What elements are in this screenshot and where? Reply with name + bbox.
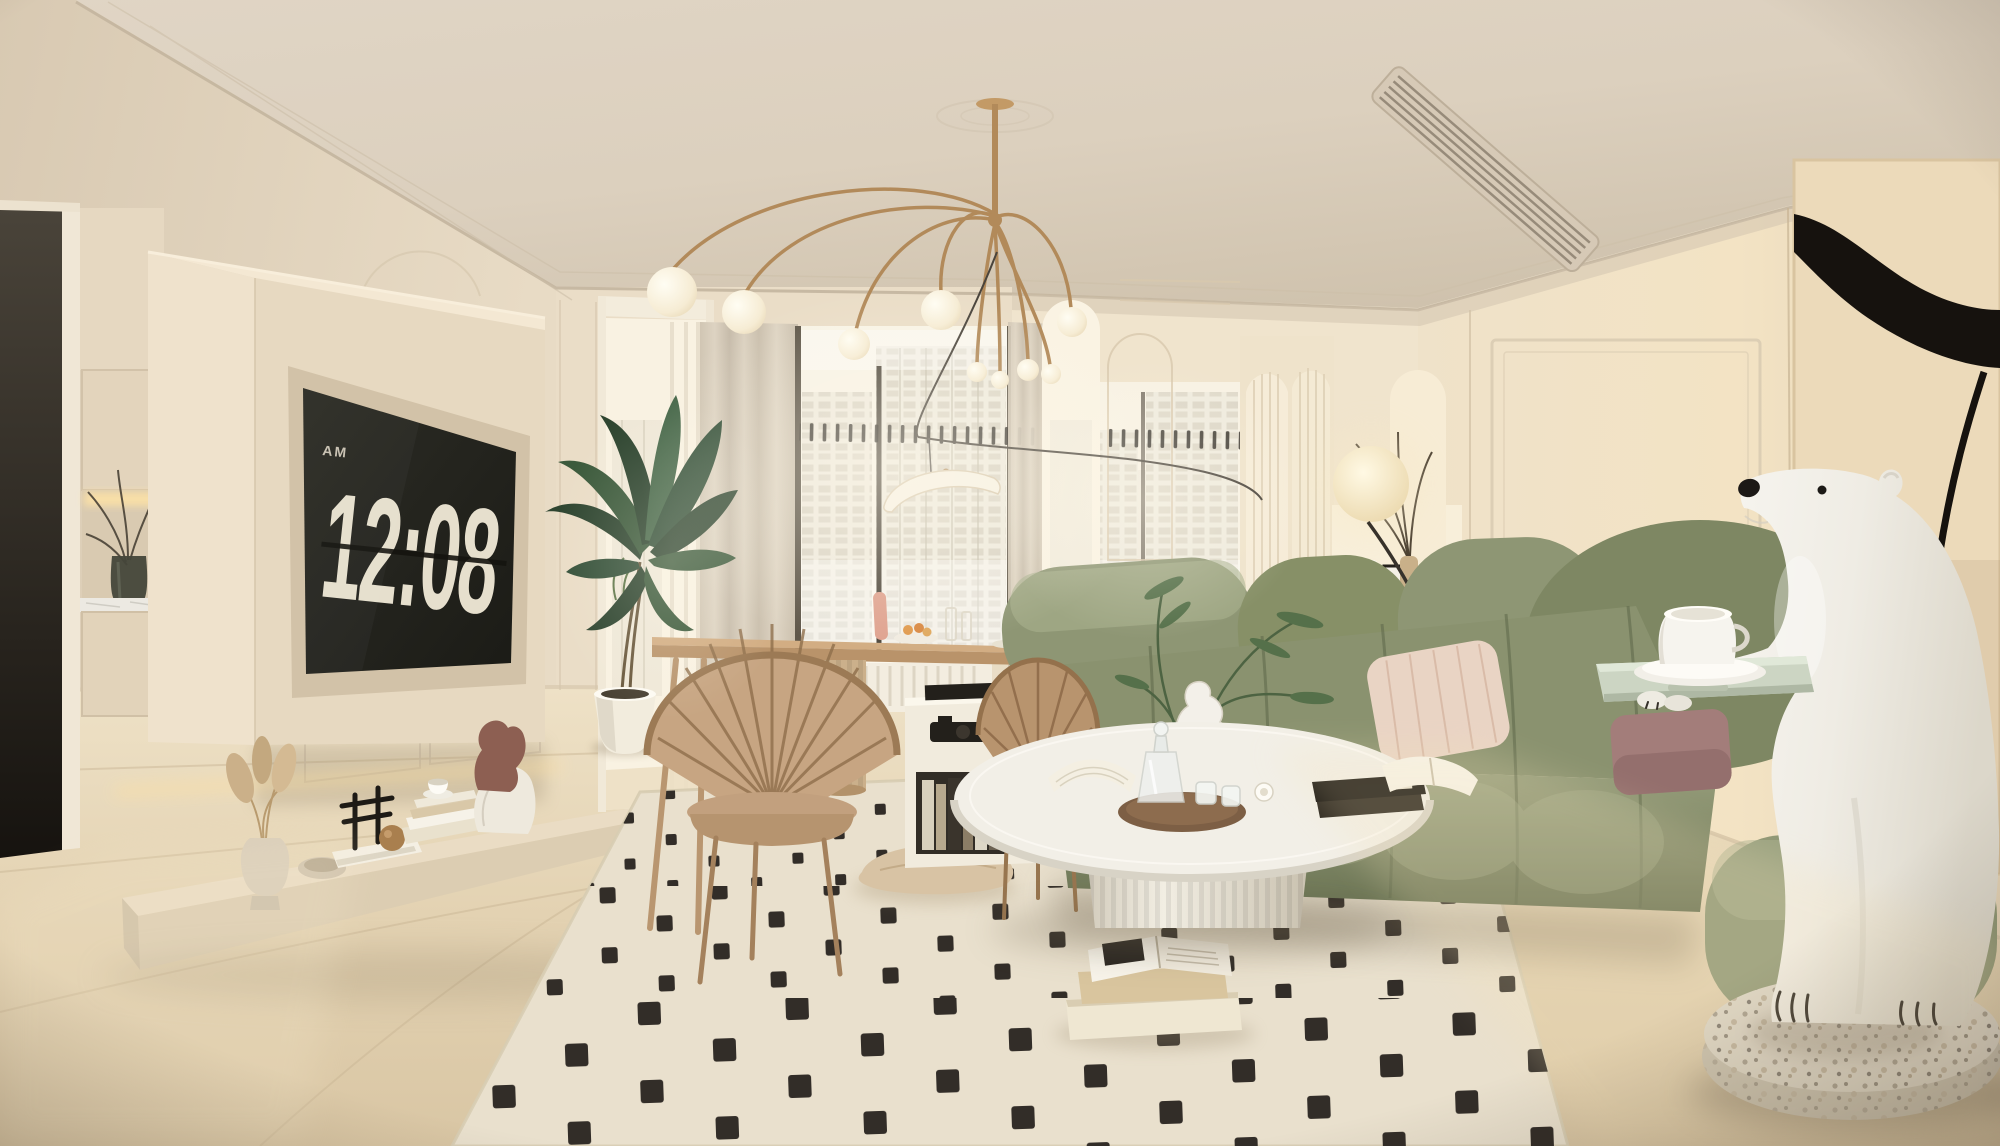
interior-render: AM 12:08: [0, 0, 2000, 1146]
vignette: [0, 0, 2000, 1146]
